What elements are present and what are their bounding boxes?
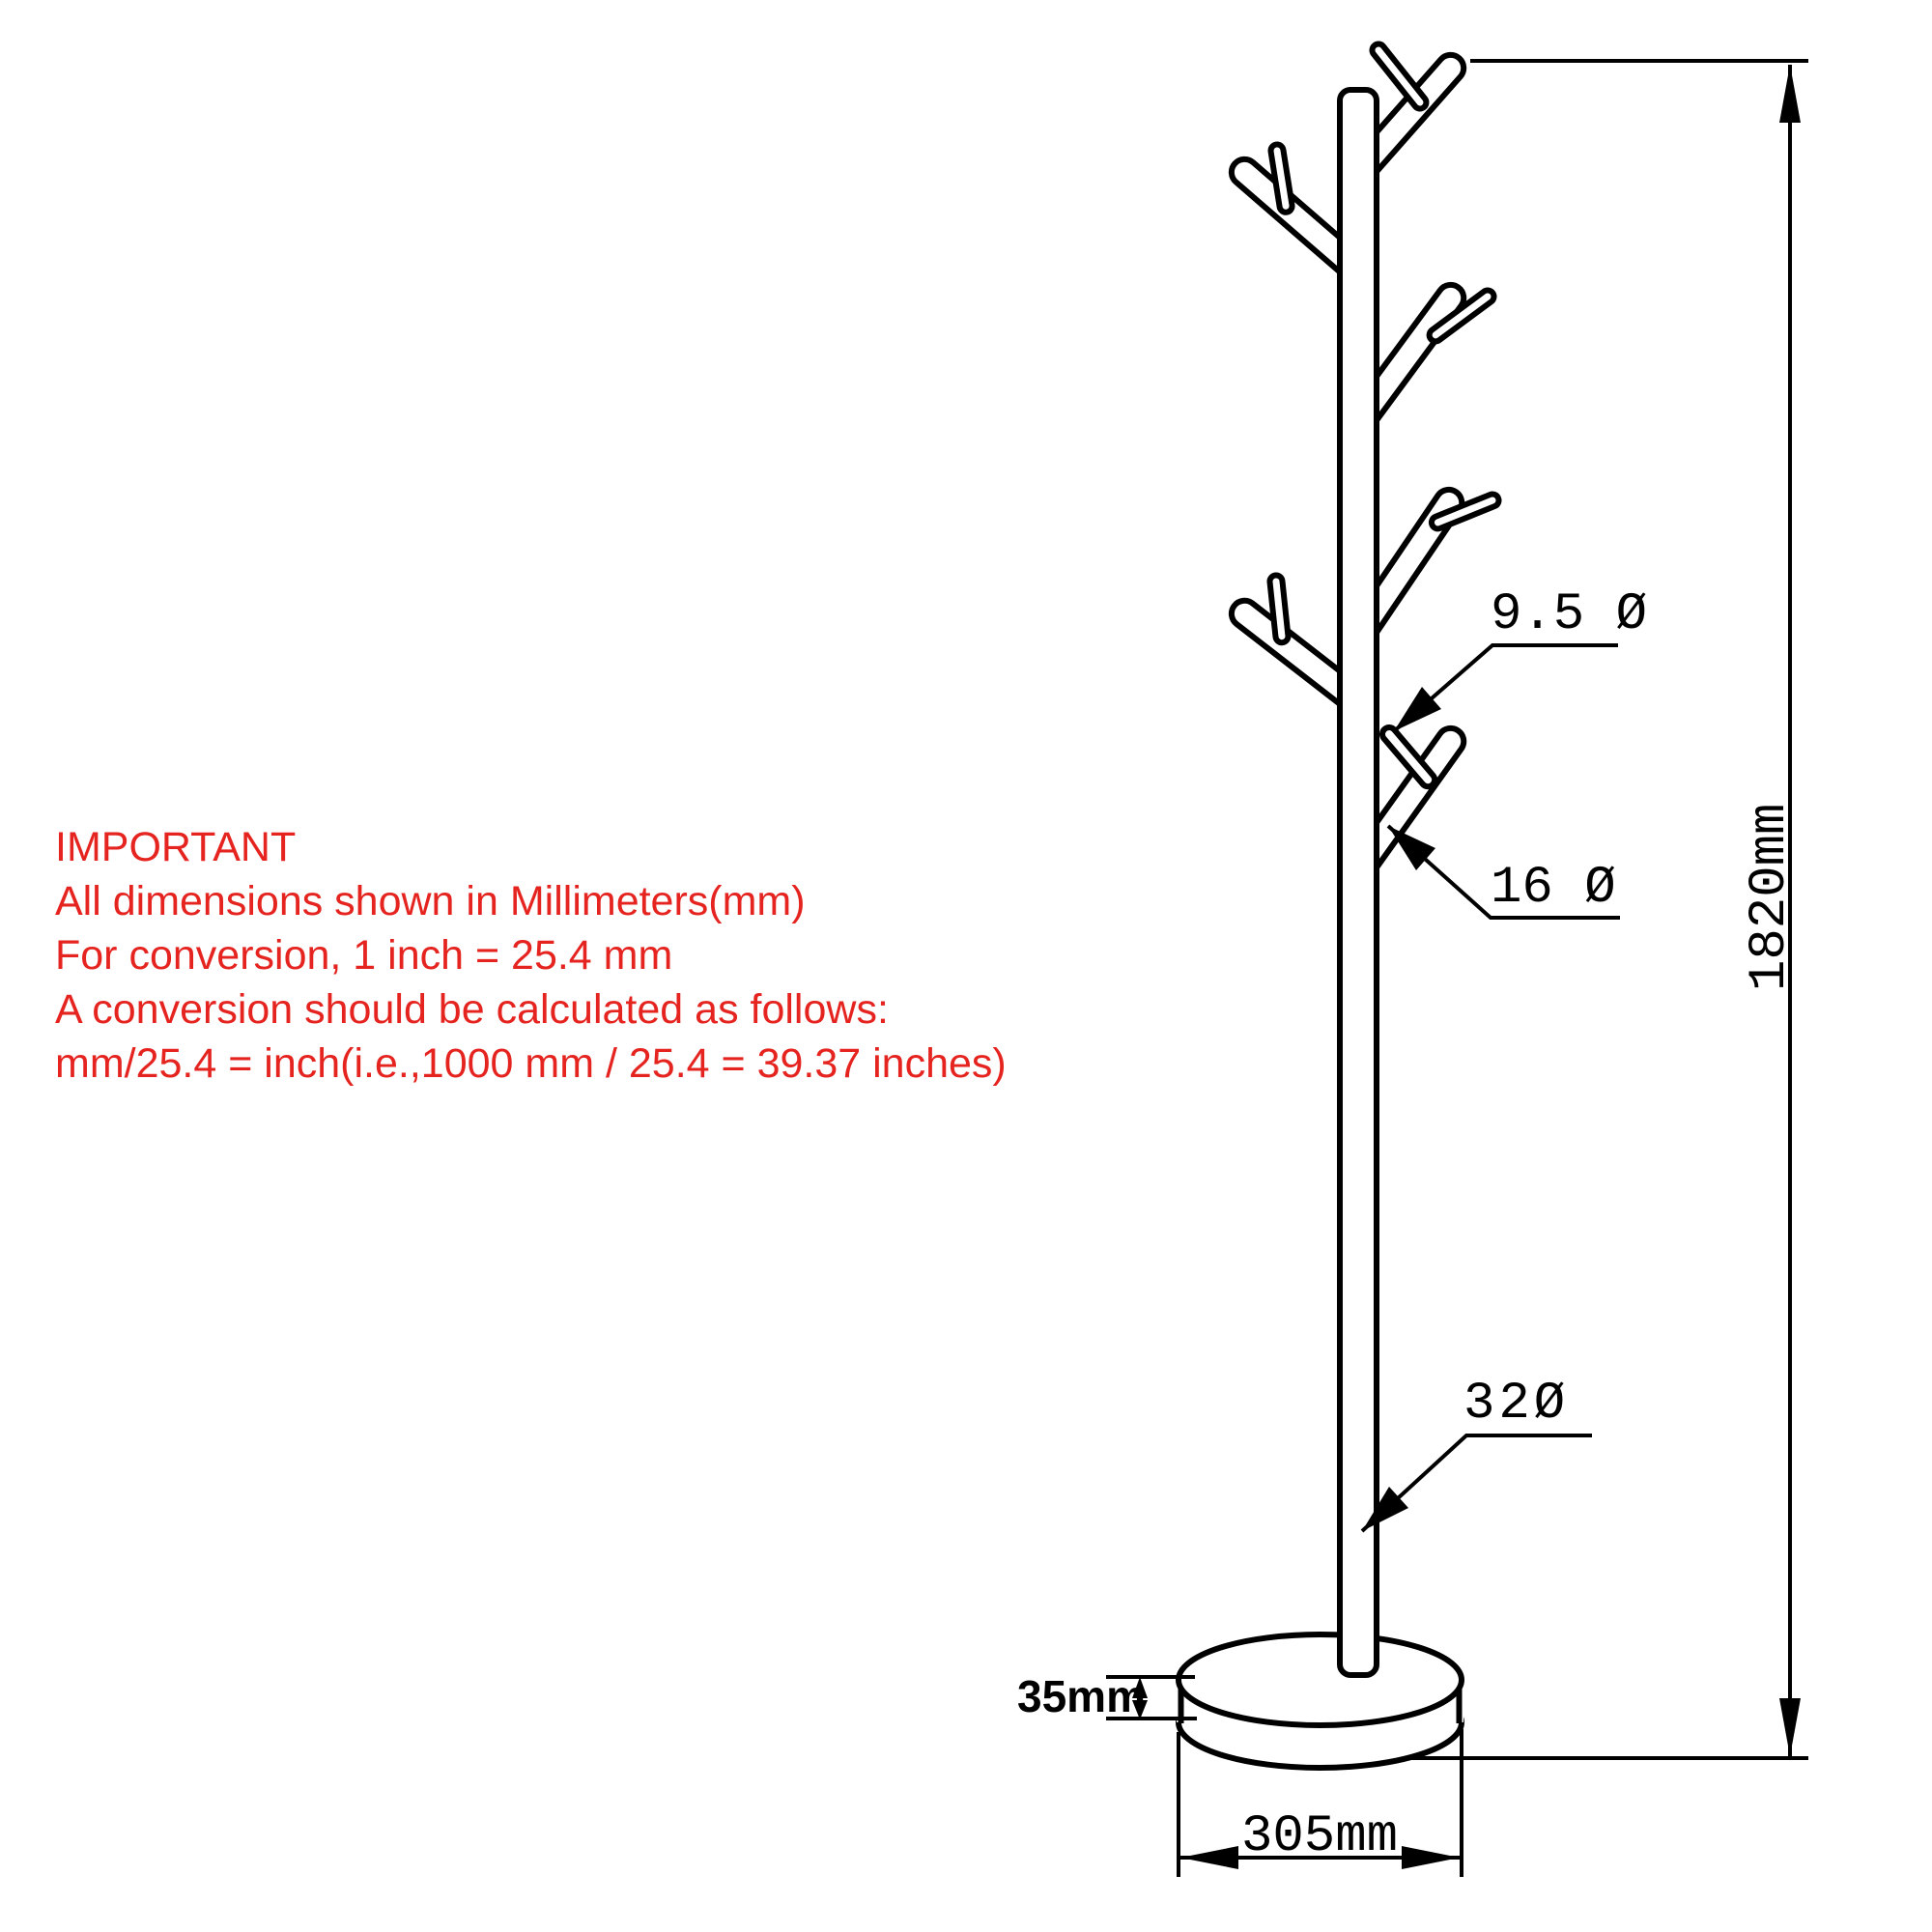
base-diameter-label: 305mm [1241,1807,1398,1866]
hook-diameter-arrowhead [1394,687,1441,731]
base-diameter-arrow-left [1180,1846,1238,1869]
peg-diameter-label: 16 Ø [1491,859,1616,918]
pole-diameter-label: 32Ø [1463,1375,1569,1434]
base-top-ellipse [1179,1634,1462,1725]
notice-line-2: For conversion, 1 inch = 25.4 mm [55,928,1007,982]
coat-rack-technical-drawing: 1820mm 9.5 Ø 16 Ø 32Ø 35mm [0,0,1932,1932]
base-thickness-label: 35mm [1017,1671,1146,1721]
height-arrow-up [1779,65,1801,123]
notice-line-3: A conversion should be calculated as fol… [55,982,1007,1037]
height-arrow-down [1779,1698,1801,1756]
notice-line-1: All dimensions shown in Millimeters(mm) [55,874,1007,928]
hook-diameter-leader-line [1394,645,1618,731]
height-label: 1820mm [1741,804,1800,991]
hook-diameter-label: 9.5 Ø [1491,585,1647,644]
notice-line-4: mm/25.4 = inch(i.e.,1000 mm / 25.4 = 39.… [55,1037,1007,1091]
base-diameter-arrow-right [1402,1846,1460,1869]
base-disk [1177,1634,1463,1768]
notice-title: IMPORTANT [55,820,1007,874]
important-notice: IMPORTANT All dimensions shown in Millim… [55,820,1007,1091]
pole-trunk [1340,90,1377,1675]
pole-diameter-leader-line [1362,1435,1592,1531]
